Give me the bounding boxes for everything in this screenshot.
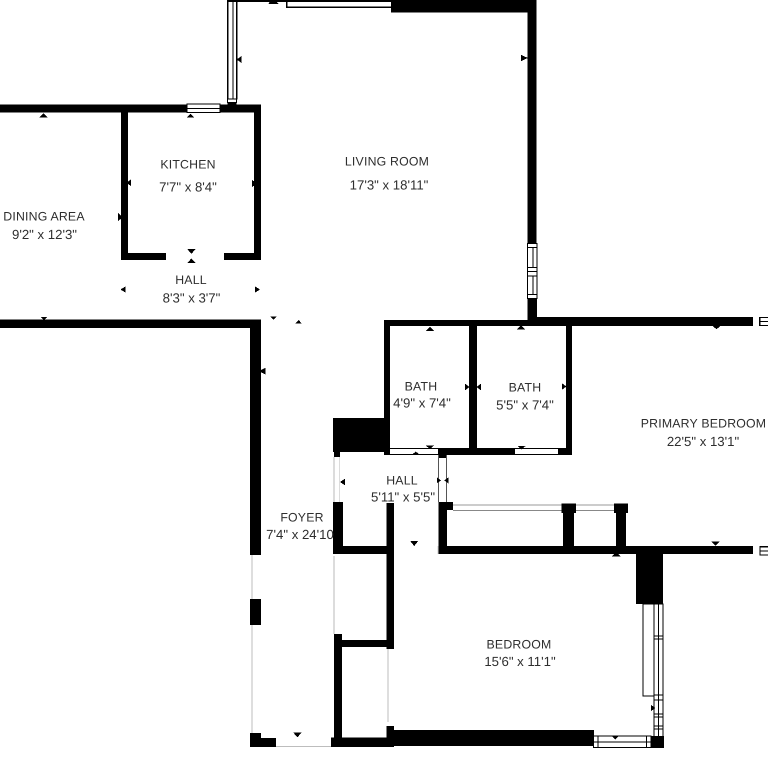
svg-text:7'4" x 24'10: 7'4" x 24'10 [266,527,334,542]
svg-text:BATH: BATH [405,379,438,393]
svg-text:FOYER: FOYER [280,510,323,524]
svg-text:HALL: HALL [175,273,207,287]
svg-text:DINING AREA: DINING AREA [3,209,85,223]
svg-text:PRIMARY BEDROOM: PRIMARY BEDROOM [641,416,767,430]
svg-text:15'6" x 11'1": 15'6" x 11'1" [484,654,556,669]
svg-text:7'7" x 8'4": 7'7" x 8'4" [159,180,217,195]
svg-text:LIVING ROOM: LIVING ROOM [345,154,429,168]
svg-text:9'2" x 12'3": 9'2" x 12'3" [12,227,77,242]
svg-text:4'9" x 7'4": 4'9" x 7'4" [393,396,451,411]
svg-text:BEDROOM: BEDROOM [487,637,552,651]
svg-text:17'3" x 18'11": 17'3" x 18'11" [350,178,429,193]
svg-text:22'5" x 13'1": 22'5" x 13'1" [667,434,740,449]
svg-text:BATH: BATH [509,380,542,394]
svg-text:KITCHEN: KITCHEN [160,157,215,171]
svg-text:5'11" x 5'5": 5'11" x 5'5" [371,490,435,505]
svg-text:5'5" x 7'4": 5'5" x 7'4" [496,398,554,413]
svg-text:8'3" x 3'7": 8'3" x 3'7" [163,291,221,306]
svg-text:HALL: HALL [386,473,418,487]
